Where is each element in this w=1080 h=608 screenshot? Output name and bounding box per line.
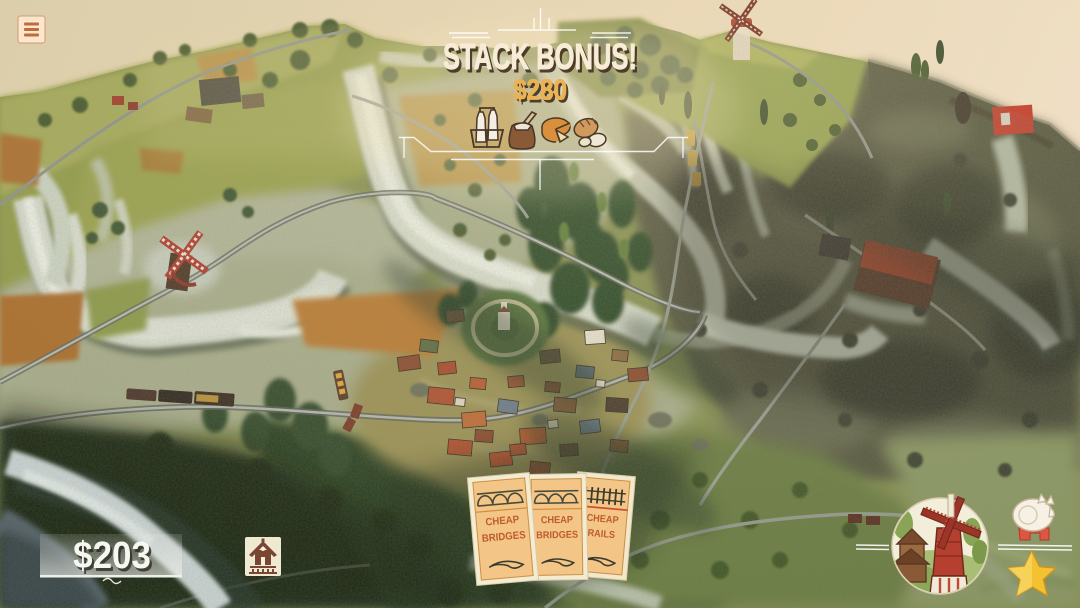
svg-text:$203: $203 — [73, 534, 151, 577]
svg-text:BRIDGES: BRIDGES — [536, 529, 579, 541]
svg-text:STACK BONUS!: STACK BONUS! — [443, 35, 637, 77]
svg-text:RAILS: RAILS — [587, 527, 616, 541]
svg-text:CHEAP: CHEAP — [541, 514, 574, 526]
svg-text:$280: $280 — [513, 74, 567, 106]
